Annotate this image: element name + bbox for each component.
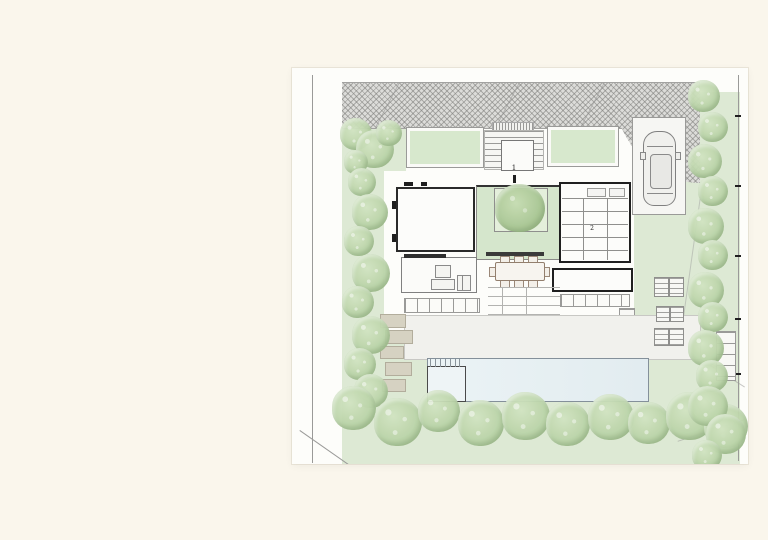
- boundary-tick: [735, 115, 741, 117]
- tree-icon: [332, 386, 376, 430]
- lower-room: [552, 268, 633, 292]
- sun-lounger: [656, 306, 670, 322]
- step-divider: [526, 287, 527, 315]
- tree-icon: [458, 400, 504, 446]
- car-icon: [643, 131, 677, 207]
- entry-door-stub: [513, 175, 516, 183]
- skylight: [587, 188, 606, 197]
- boundary-line-right: [738, 75, 739, 461]
- sun-lounger: [669, 277, 684, 297]
- tree-icon: [698, 240, 728, 270]
- tree-icon: [688, 144, 722, 178]
- roof-planter-left: [406, 127, 484, 168]
- car-hood-line: [647, 146, 673, 147]
- stepping-stone: [385, 362, 412, 376]
- tree-icon: [588, 394, 634, 440]
- entry-label: 1: [506, 165, 522, 172]
- tree-icon: [418, 390, 460, 432]
- boundary-tick: [735, 255, 741, 257]
- paver-row: [404, 298, 480, 313]
- paver-row: [560, 294, 630, 307]
- tree-icon: [698, 302, 728, 332]
- wall-stub: [421, 182, 427, 186]
- entry-label-text: 1: [512, 164, 516, 172]
- tree-icon: [692, 440, 722, 464]
- tree-icon: [344, 226, 374, 256]
- roof-grid-vline: [607, 198, 608, 260]
- tree-icon: [348, 168, 376, 196]
- tree-icon: [352, 194, 388, 230]
- roof-room-label-text: 2: [590, 225, 594, 232]
- courtyard-tree-icon: [495, 184, 545, 232]
- sun-lounger: [670, 306, 684, 322]
- tree-icon: [502, 392, 550, 440]
- dining-steps: [488, 287, 560, 315]
- car-mirror-left: [640, 152, 646, 160]
- sofa: [431, 279, 455, 290]
- pool-ladder: [455, 359, 463, 367]
- site-plan: 1 2: [292, 68, 748, 464]
- car-rear-line: [647, 193, 673, 194]
- tree-icon: [698, 176, 728, 206]
- sun-lounger: [654, 328, 669, 346]
- wall-stub: [392, 201, 396, 209]
- tree-icon: [342, 286, 374, 318]
- tree-icon: [688, 208, 724, 244]
- tree-icon: [628, 402, 670, 444]
- roof-room-label: 2: [585, 226, 599, 232]
- tree-icon: [546, 402, 590, 446]
- pool-steps: [430, 359, 452, 367]
- side-sofa: [457, 275, 471, 291]
- roof-grid-vline: [583, 198, 584, 260]
- pergola-edge: [404, 254, 446, 258]
- sun-lounger: [669, 328, 684, 346]
- tree-icon: [688, 80, 720, 112]
- car-mirror-right: [675, 152, 681, 160]
- tree-icon: [376, 120, 402, 146]
- armchair: [435, 265, 451, 278]
- living-room: [401, 257, 477, 293]
- tree-icon: [698, 112, 728, 142]
- dining-table: [495, 262, 545, 281]
- tree-icon: [374, 398, 422, 446]
- wall-stub: [392, 234, 396, 242]
- skylight: [609, 188, 625, 197]
- roof-grid-room: 2: [559, 182, 631, 263]
- boundary-line-left: [312, 75, 313, 463]
- main-room: [396, 187, 475, 252]
- boundary-tick: [735, 185, 741, 187]
- boundary-tick: [735, 318, 741, 320]
- wall-stub: [404, 182, 413, 186]
- roof-planter-right: [547, 126, 619, 167]
- sun-lounger: [654, 277, 669, 297]
- car-roof: [650, 154, 672, 189]
- page-background: 1 2: [0, 0, 768, 540]
- step-divider: [502, 287, 503, 315]
